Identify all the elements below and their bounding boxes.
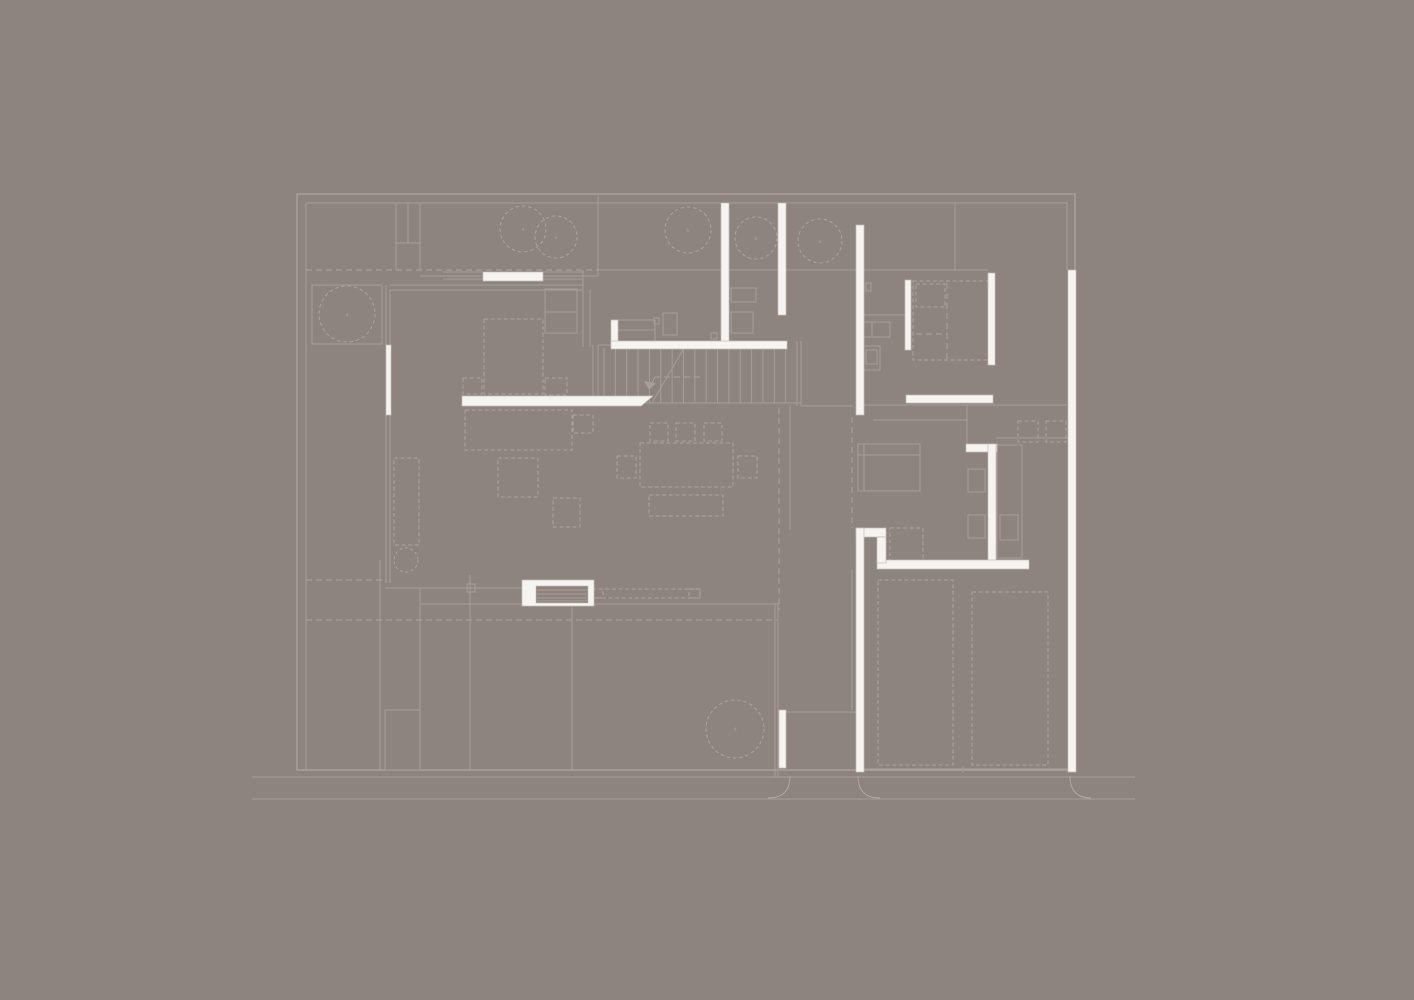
- street-and-driveway: [768, 776, 1091, 798]
- svg-text:a: a: [818, 239, 821, 245]
- svg-text:a: a: [521, 227, 524, 233]
- floor-plan-drawing: aabbaad: [0, 0, 1414, 1000]
- interior-thin-walls: [252, 196, 1135, 799]
- svg-text:a: a: [554, 235, 557, 241]
- furniture-dashed: [394, 281, 1066, 765]
- staircase: [604, 348, 797, 403]
- svg-text:b: b: [754, 236, 757, 242]
- overhang-dashed-lines: [306, 270, 947, 620]
- svg-text:a: a: [345, 312, 348, 318]
- tree-symbols: [319, 206, 842, 758]
- floor-plan-page: aabbaad: [0, 0, 1414, 1000]
- svg-text:b: b: [686, 228, 689, 234]
- site-boundary: [297, 194, 1075, 770]
- svg-text:d: d: [733, 727, 736, 733]
- exterior-steps-detail: [536, 586, 588, 603]
